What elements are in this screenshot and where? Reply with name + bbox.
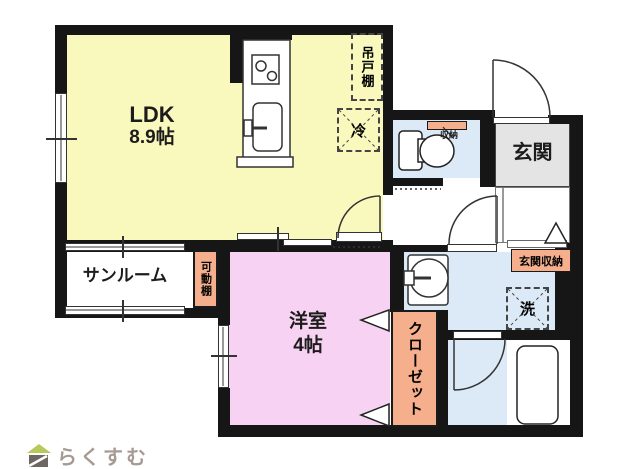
door-leaf-entrance <box>493 117 550 124</box>
wall-segment <box>55 25 67 93</box>
refrigerator-label: 冷 <box>351 120 366 141</box>
ldk-size-label: 8.9帖 <box>102 128 202 149</box>
door-leaf-ldk <box>336 232 382 242</box>
wall-segment <box>218 388 230 435</box>
wall-segment <box>438 310 448 427</box>
sunroom-label: サンルーム <box>62 267 188 286</box>
entrance-storage-label: 玄関収納 <box>519 253 563 269</box>
washing-machine-box: 洗 <box>506 287 549 330</box>
room-entrance-storage-area <box>495 187 570 243</box>
movable-shelf-box: 可動棚 <box>193 250 218 308</box>
washroom-door-arc <box>449 196 497 244</box>
wall-segment <box>55 25 392 35</box>
room-bath-tub-platform <box>507 338 570 425</box>
window-ldk-left <box>55 93 67 183</box>
hanging-cupboard-label: 吊戸棚 <box>358 46 377 88</box>
western-room-label: 洋室 <box>258 312 358 333</box>
window-sunroom-top <box>65 243 185 251</box>
logo-text: らくすむ <box>57 441 149 469</box>
site-logo: らくすむ <box>26 441 149 469</box>
wall-segment <box>570 117 583 437</box>
wall-segment <box>393 110 480 120</box>
ldk-label: LDK <box>102 103 202 127</box>
toilet-storage-label: 収納 <box>440 131 458 141</box>
toilet-shelf-box <box>427 121 467 130</box>
sliding-door-panel <box>283 239 332 246</box>
wall-segment <box>235 25 292 40</box>
entrance-storage-box: 玄関収納 <box>511 249 571 272</box>
door-leaf-bathroom <box>453 331 502 339</box>
movable-shelf-label: 可動棚 <box>198 261 214 297</box>
sliding-door-panel <box>237 233 289 240</box>
window-sunroom-bottom <box>65 306 185 315</box>
wall-segment <box>383 245 447 252</box>
wall-segment <box>390 245 404 312</box>
room-bathroom <box>447 338 507 425</box>
western-room-size-label: 4帖 <box>258 336 358 357</box>
closet-box: クローゼット <box>391 310 438 427</box>
window-western-left <box>218 325 229 388</box>
wall-segment <box>383 25 393 195</box>
door-leaf-washroom <box>447 244 497 252</box>
wall-segment <box>393 178 443 186</box>
hanging-cupboard-box: 吊戸棚 <box>351 33 383 101</box>
closet-label: クローゼット <box>404 321 425 417</box>
opening-toilet <box>443 178 480 187</box>
logo-house-icon <box>26 443 52 469</box>
entrance-door-arc <box>493 60 550 117</box>
refrigerator-box: 冷 <box>337 108 380 152</box>
floor-plan: 可動棚 クローゼット 玄関収納 吊戸棚 冷 洗 <box>0 0 640 469</box>
washing-machine-label: 洗 <box>520 298 535 319</box>
entrance-label: 玄関 <box>495 142 570 164</box>
wall-segment <box>218 245 230 325</box>
entrance-storage-front <box>507 240 567 248</box>
